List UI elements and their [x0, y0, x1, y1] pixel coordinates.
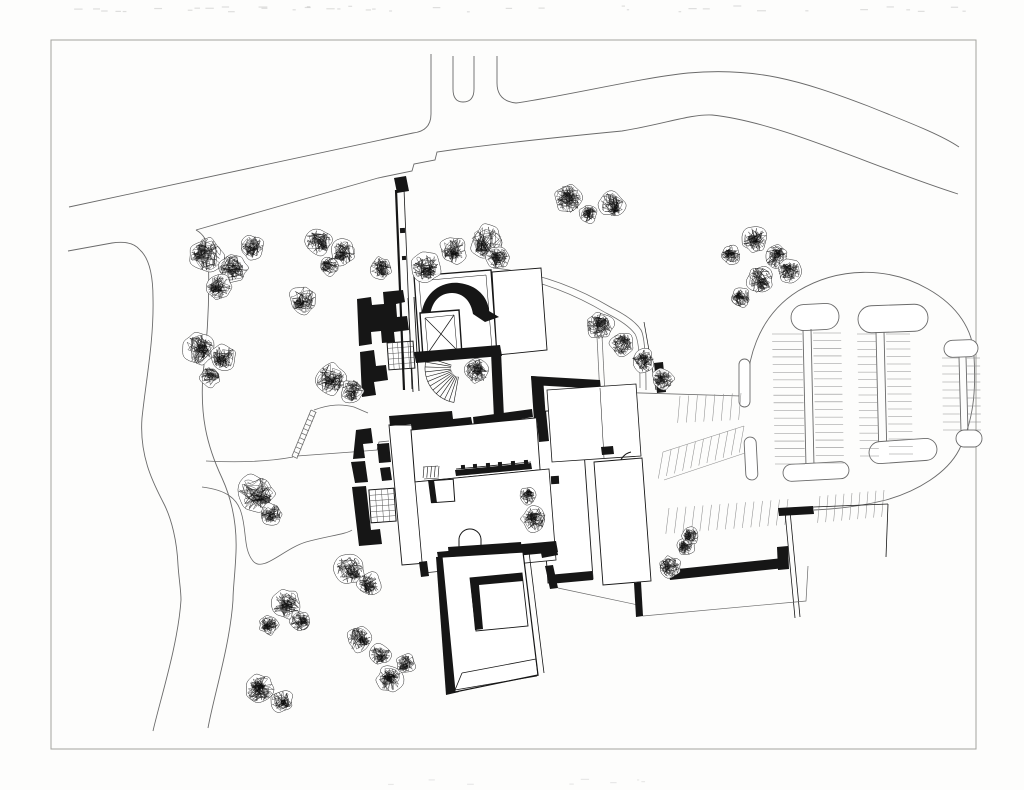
column — [524, 460, 528, 464]
island-cap — [858, 304, 929, 333]
corridor-kiosk — [551, 476, 559, 484]
tree-canopy — [779, 259, 802, 283]
tree-dark-patch — [206, 373, 214, 378]
island-foot — [868, 438, 937, 465]
east-wing — [594, 458, 651, 585]
island-cap — [790, 303, 839, 331]
column — [511, 461, 515, 465]
island-foot — [956, 430, 982, 447]
garden-wall-post — [777, 546, 789, 570]
column — [498, 462, 502, 466]
gallery-edge-poche — [377, 443, 391, 463]
tree-canopy — [485, 247, 509, 268]
column — [486, 463, 490, 467]
walk-marker — [400, 228, 405, 233]
gallery-edge-poche — [380, 467, 392, 481]
scanned-site-plan-page — [0, 0, 1024, 790]
column — [461, 465, 465, 469]
northeast-wing — [547, 384, 641, 462]
island-cap — [944, 339, 979, 357]
tile-court-south — [369, 488, 396, 523]
island-foot — [783, 461, 850, 481]
entry-flank-poche — [601, 446, 614, 455]
walk-marker — [402, 256, 406, 260]
column — [473, 464, 477, 468]
site-plan-drawing — [0, 0, 1024, 790]
northeast-room — [492, 268, 547, 355]
parking-slot-island — [744, 437, 758, 481]
